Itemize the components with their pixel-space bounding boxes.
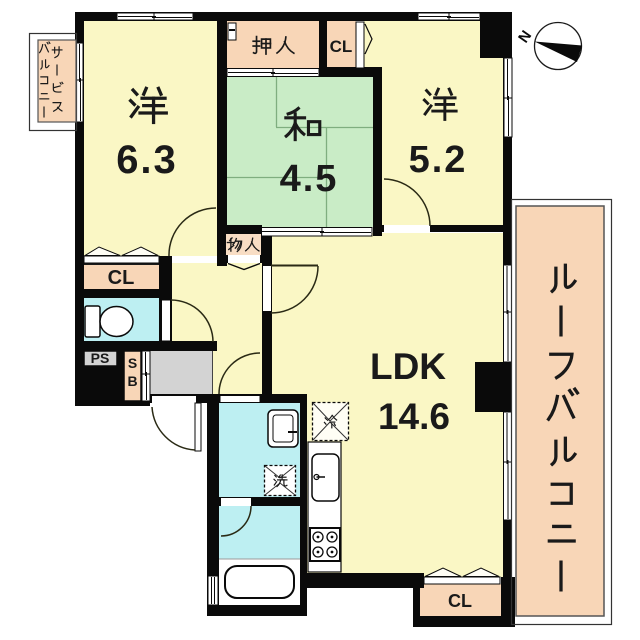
svg-text:4.5: 4.5 [280,158,339,200]
svg-text:14.6: 14.6 [378,396,450,437]
svg-text:B: B [127,373,137,389]
svg-text:CL: CL [108,267,135,289]
svg-text:PS: PS [91,350,110,366]
svg-text:LDK: LDK [370,346,446,387]
svg-text:CL: CL [448,591,472,611]
svg-text:CL: CL [330,37,353,56]
svg-text:5.2: 5.2 [409,139,468,181]
svg-text:6.3: 6.3 [116,138,178,182]
svg-text:S: S [128,355,137,371]
